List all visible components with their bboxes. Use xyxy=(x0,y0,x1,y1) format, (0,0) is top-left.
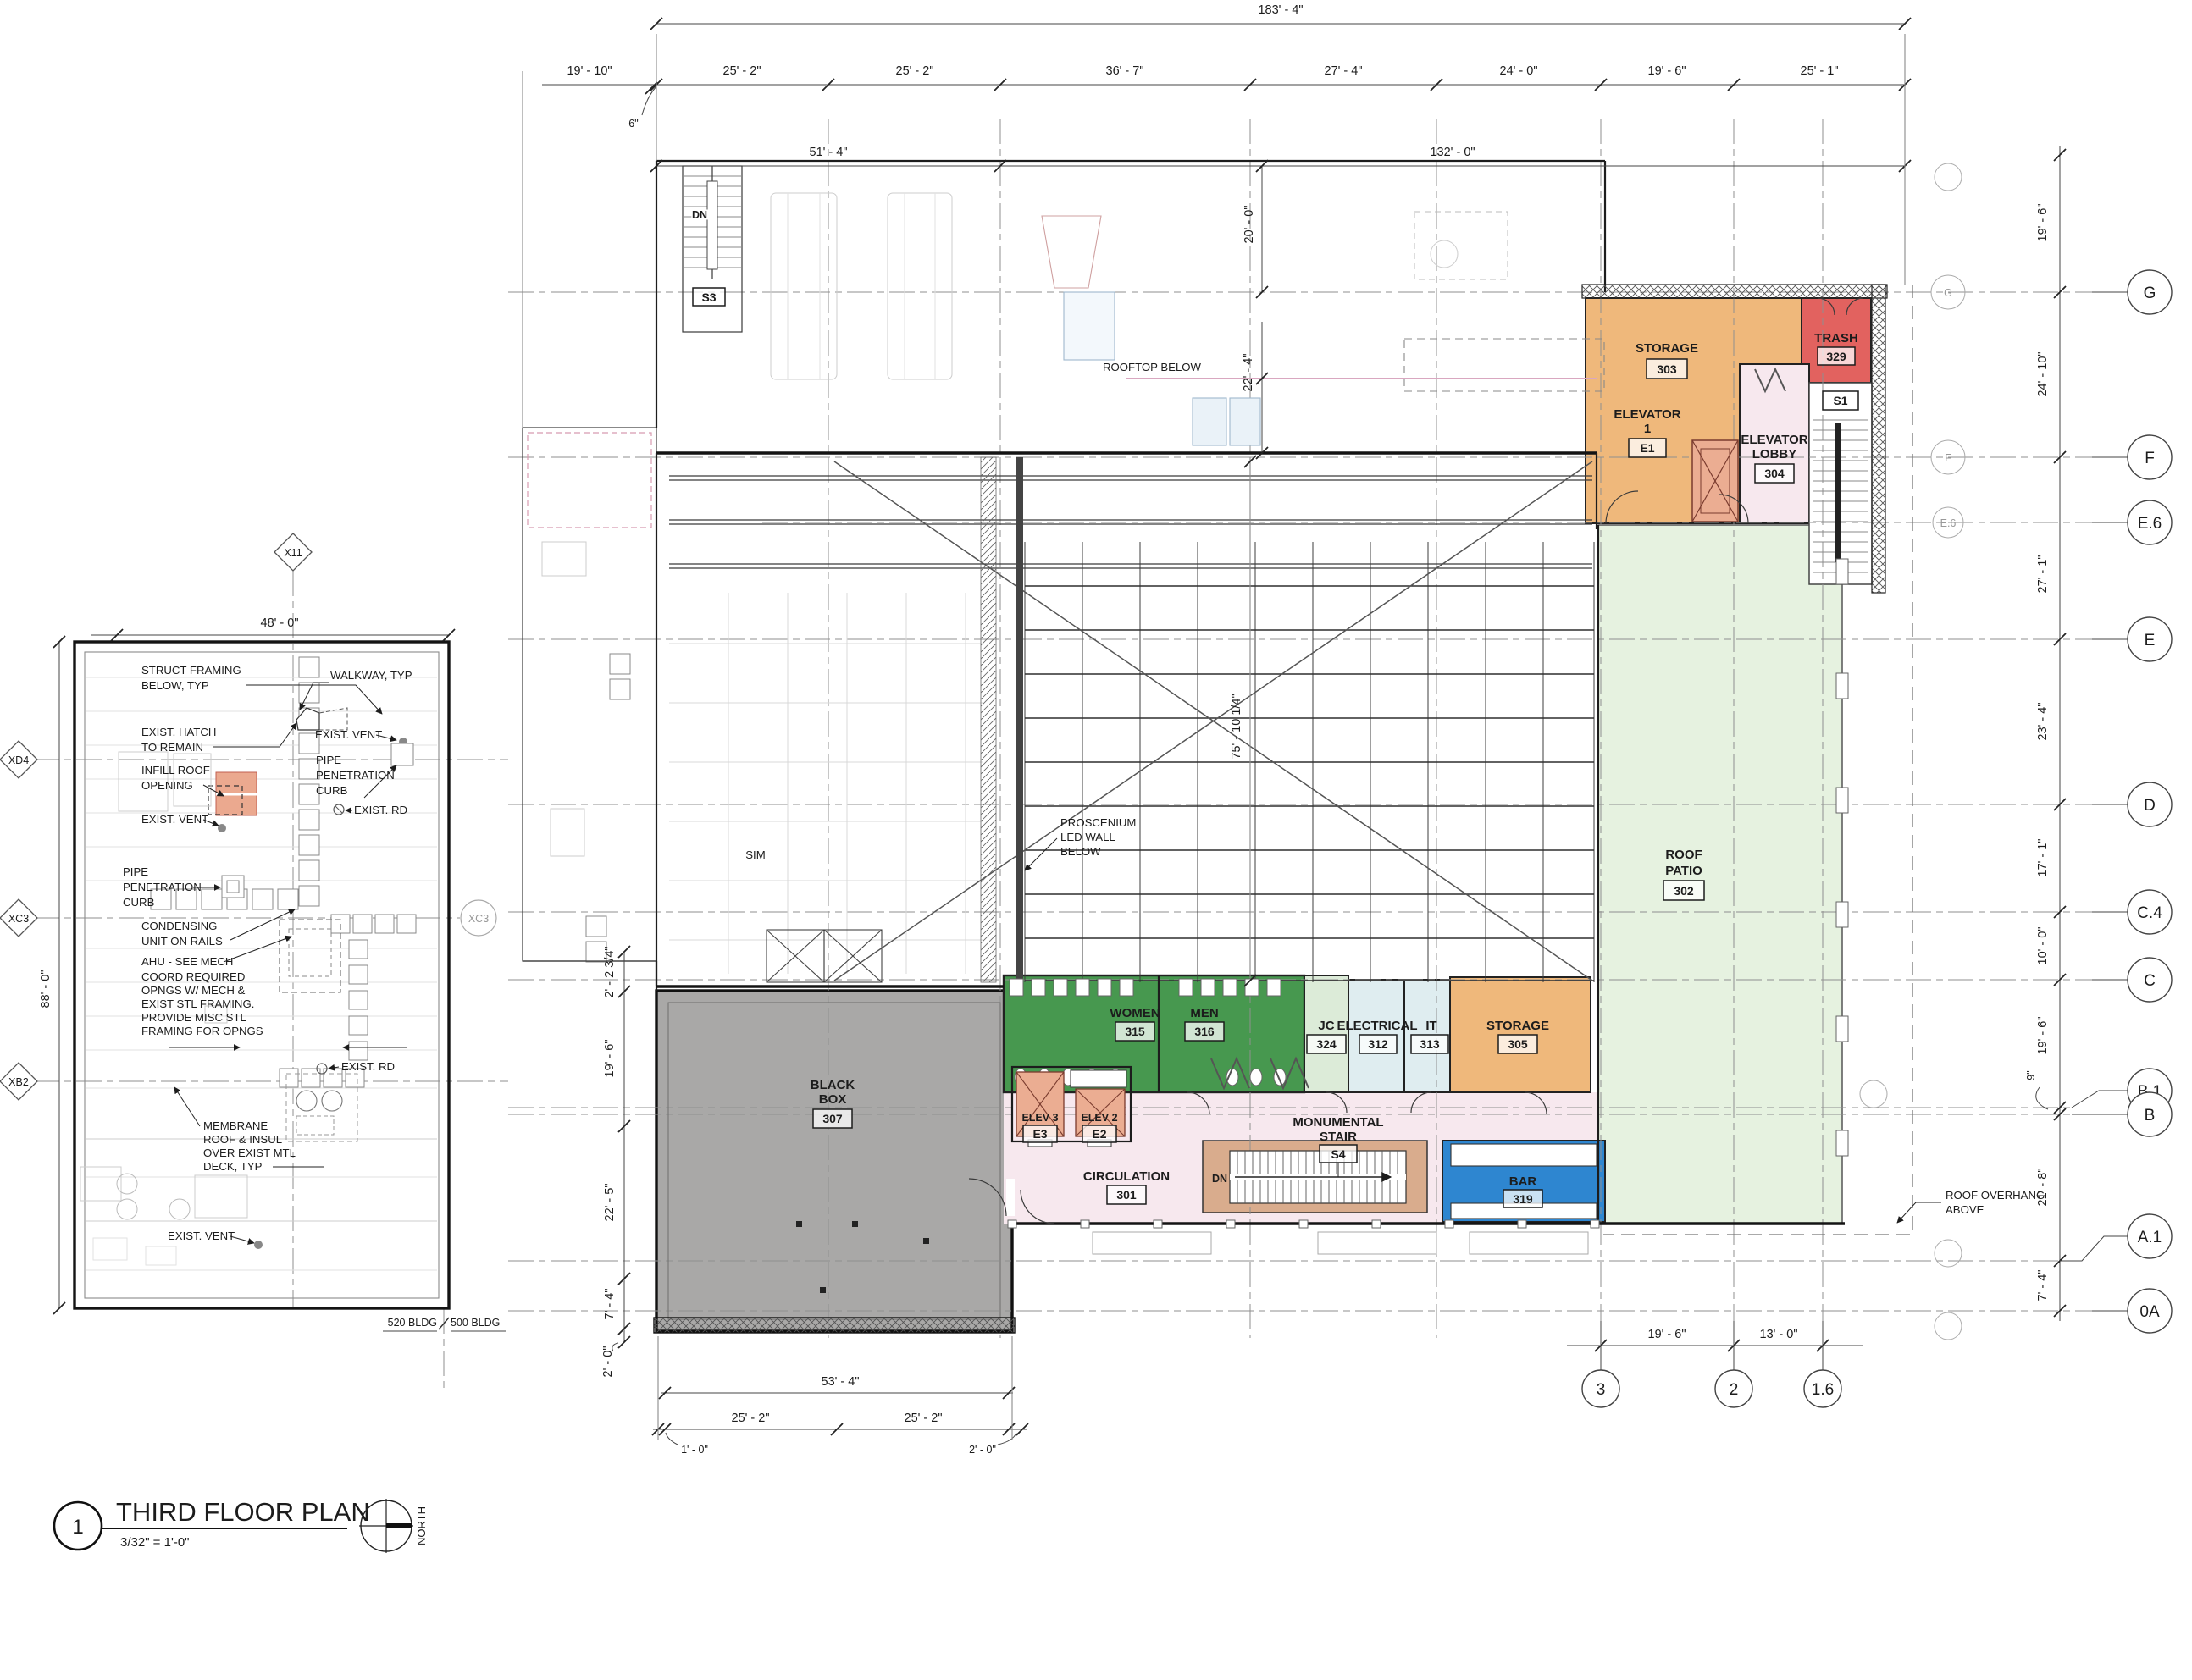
ann-coord-4: PROVIDE MISC STL xyxy=(141,1011,246,1024)
grid-bubble-16: 1.6 xyxy=(1812,1381,1834,1399)
dim-center-0: 20' - 0" xyxy=(1243,206,1256,244)
ann-hatch-1: EXIST. HATCH xyxy=(141,726,216,738)
label-jc: JC xyxy=(1318,1019,1334,1033)
ann-vent-c: EXIST. VENT xyxy=(168,1230,235,1242)
dim-bb-left-0: 2' - 2 3/4" xyxy=(603,946,617,997)
dim-bb-left-2: 22' - 5" xyxy=(603,1184,617,1222)
dim-nine-inch: 9" xyxy=(2025,1070,2037,1080)
label-elev2: ELEV 2 xyxy=(1081,1112,1117,1124)
rooftop-equipment xyxy=(771,193,1604,445)
num-elevator1: E1 xyxy=(1640,441,1654,455)
floor-plan-svg: G F E.6 E D C.4 C B.1 B A.1 0A G F E.6 3… xyxy=(0,0,2192,1680)
dim-bb-bottom-2: 25' - 2" xyxy=(905,1412,943,1425)
ann-infill-1: INFILL ROOF xyxy=(141,764,210,776)
grid-bubble-0a: 0A xyxy=(2139,1303,2160,1321)
num-circulation: 301 xyxy=(1116,1188,1137,1202)
ann-coord-2: OPNGS W/ MECH & xyxy=(141,984,246,997)
ann-struct-1: STRUCT FRAMING xyxy=(141,664,241,677)
ann-rd-b: EXIST. RD xyxy=(341,1060,395,1073)
label-patio-l2: PATIO xyxy=(1665,864,1702,878)
label-elevator1-l1: ELEVATOR xyxy=(1614,407,1680,422)
num-men: 316 xyxy=(1194,1025,1215,1038)
grid-bubble-d: D xyxy=(2144,797,2156,815)
vent-circle-c xyxy=(254,1241,263,1249)
label-storage-303: STORAGE xyxy=(1636,341,1698,356)
ann-cond-2: UNIT ON RAILS xyxy=(141,935,223,948)
grid-bubble-e6: E.6 xyxy=(2138,515,2162,533)
infill-roof-opening xyxy=(208,772,257,815)
elevator1-shaft xyxy=(1692,440,1738,522)
dim-bottomgrid-0: 19' - 6" xyxy=(1648,1328,1686,1341)
title-name: THIRD FLOOR PLAN xyxy=(116,1497,370,1527)
annotations-left-plan: STRUCT FRAMING BELOW, TYP WALKWAY, TYP E… xyxy=(123,664,412,1243)
label-monstair-l2: STAIR xyxy=(1320,1130,1357,1144)
small-bubble-f: F xyxy=(1945,452,1951,464)
monumental-stair-detail xyxy=(1230,1151,1406,1203)
dim-sub-1: 132' - 0" xyxy=(1430,146,1475,159)
label-elevator1-l2: 1 xyxy=(1644,422,1651,436)
dim-bb-left-4: 2' - 0" xyxy=(601,1346,615,1378)
grid-bubble-g: G xyxy=(2144,285,2156,302)
label-bar: BAR xyxy=(1509,1174,1537,1189)
label-trash: TRASH xyxy=(1814,331,1858,345)
ann-curbb-1: PIPE xyxy=(123,865,148,878)
ann-curba-3: CURB xyxy=(316,784,348,797)
bldg-500-label: 500 BLDG xyxy=(451,1317,500,1329)
catwalk-hatch-band xyxy=(981,457,996,982)
ann-cond-1: CONDENSING xyxy=(141,920,217,932)
room-black-box-307 xyxy=(656,991,1012,1331)
label-elevlobby-l2: LOBBY xyxy=(1752,447,1797,461)
dim-top-4: 27' - 4" xyxy=(1325,64,1363,78)
ann-coord-1: COORD REQUIRED xyxy=(141,970,245,983)
dim-bb-left-1: 19' - 6" xyxy=(603,1040,617,1078)
grid-bubble-a1: A.1 xyxy=(2138,1229,2162,1246)
label-sim: SIM xyxy=(745,848,765,861)
room-jc-324 xyxy=(1304,975,1348,1092)
dim-bb-left-3: 7' - 4" xyxy=(603,1289,617,1320)
dim-leftplan-width: 48' - 0" xyxy=(261,616,299,630)
small-bubble-e6: E.6 xyxy=(1940,517,1957,529)
ann-prosc-1: PROSCENIUM xyxy=(1060,816,1136,829)
ann-curbb-3: CURB xyxy=(123,896,155,909)
num-patio: 302 xyxy=(1674,884,1694,898)
label-women: WOMEN xyxy=(1110,1006,1160,1020)
ann-mem-1: MEMBRANE xyxy=(203,1119,268,1132)
dim-bb-bottom-0: 53' - 4" xyxy=(822,1375,860,1389)
dim-right-0: 19' - 6" xyxy=(2036,204,2050,242)
dim-top-3: 36' - 7" xyxy=(1106,64,1144,78)
bldg-520-label: 520 BLDG xyxy=(388,1317,437,1329)
stair-s3 xyxy=(683,166,742,332)
grid-bubble-c4: C.4 xyxy=(2137,904,2162,922)
small-bubble-g: G xyxy=(1944,287,1952,299)
num-women: 315 xyxy=(1125,1025,1145,1038)
dim-center-2: 75' - 10 1/4" xyxy=(1230,694,1243,759)
label-storage-305: STORAGE xyxy=(1486,1019,1549,1033)
num-it: 313 xyxy=(1420,1037,1440,1051)
building-split-marker: 520 BLDG 500 BLDG xyxy=(383,1317,506,1331)
ann-infill-2: OPENING xyxy=(141,779,193,792)
num-storage-305: 305 xyxy=(1508,1037,1528,1051)
dim-top-2: 25' - 2" xyxy=(896,64,934,78)
dim-bb-note-0: 1' - 0" xyxy=(681,1444,708,1456)
label-circulation: CIRCULATION xyxy=(1083,1169,1170,1184)
label-elevlobby-l1: ELEVATOR xyxy=(1741,433,1807,447)
ann-ahu: AHU - SEE MECH xyxy=(141,955,233,968)
num-stair-s3: S3 xyxy=(701,290,716,304)
dim-sub-0: 51' - 4" xyxy=(810,146,848,159)
title-scale: 3/32" = 1'-0" xyxy=(120,1535,189,1550)
dim-center-1: 22' - 4" xyxy=(1242,354,1255,392)
ann-prosc-3: BELOW xyxy=(1060,845,1101,858)
num-trash: 329 xyxy=(1826,350,1846,363)
dim-right-8: 7' - 4" xyxy=(2036,1270,2050,1301)
label-dn-top: DN xyxy=(692,209,707,221)
dim-bb-bottom-1: 25' - 2" xyxy=(732,1412,770,1425)
diamond-xd4: XD4 xyxy=(8,754,29,766)
grid-bubble-c: C xyxy=(2144,972,2156,990)
label-dn-stair: DN xyxy=(1212,1173,1227,1185)
ann-vent-b: EXIST. VENT xyxy=(141,813,208,826)
title-number: 1 xyxy=(72,1516,83,1539)
num-bar: 319 xyxy=(1513,1192,1533,1206)
num-electrical: 312 xyxy=(1368,1037,1388,1051)
label-blackbox-l1: BLACK xyxy=(811,1078,855,1092)
label-men: MEN xyxy=(1190,1006,1218,1020)
dim-six-inch: 6" xyxy=(628,118,638,130)
ann-vent-a: EXIST. VENT xyxy=(315,728,382,741)
grid-bubble-f: F xyxy=(2145,450,2155,467)
stage-grid-zone xyxy=(656,453,1597,986)
label-elev3: ELEV 3 xyxy=(1021,1112,1058,1124)
vent-circle-b xyxy=(218,824,226,832)
proscenium-led-wall xyxy=(1016,457,1023,982)
dim-bb-note-1: 2' - 0" xyxy=(969,1444,996,1456)
circle-xc3: XC3 xyxy=(468,913,489,925)
ann-coord-3: EXIST STL FRAMING. xyxy=(141,997,254,1010)
grid-bubbles-right: G F E.6 E D C.4 C B.1 B A.1 0A xyxy=(2060,270,2172,1333)
num-storage-303: 303 xyxy=(1657,362,1677,376)
dim-right-4: 17' - 1" xyxy=(2036,839,2050,877)
dim-right-5: 10' - 0" xyxy=(2036,927,2050,965)
grid-bubble-2: 2 xyxy=(1730,1381,1739,1399)
dim-top-5: 24' - 0" xyxy=(1500,64,1538,78)
ann-curbb-2: PENETRATION xyxy=(123,881,202,893)
dim-right-6: 19' - 6" xyxy=(2036,1017,2050,1055)
north-arrow: NORTH xyxy=(359,1499,428,1553)
dim-top-1: 25' - 2" xyxy=(723,64,761,78)
ann-hatch-2: TO REMAIN xyxy=(141,741,203,754)
label-it: IT xyxy=(1425,1019,1436,1033)
grid-bubble-e: E xyxy=(2145,632,2156,649)
dim-right-2: 27' - 1" xyxy=(2036,555,2050,594)
diamond-x11: X11 xyxy=(284,547,302,559)
dim-bottomgrid-1: 13' - 0" xyxy=(1760,1328,1798,1341)
diamond-xc3: XC3 xyxy=(8,913,29,925)
ann-mem-4: DECK, TYP xyxy=(203,1160,263,1173)
num-elev2: E2 xyxy=(1092,1127,1106,1141)
ann-struct-2: BELOW, TYP xyxy=(141,679,209,692)
num-stair-s1: S1 xyxy=(1833,394,1847,407)
third-floor-plan-sheet: G F E.6 E D C.4 C B.1 B A.1 0A G F E.6 3… xyxy=(0,0,2192,1680)
ann-mem-2: ROOF & INSUL xyxy=(203,1133,282,1146)
room-roof-patio-302 xyxy=(1598,525,1842,1224)
label-electrical: ELECTRICAL xyxy=(1337,1019,1418,1033)
north-label: NORTH xyxy=(415,1506,428,1545)
grid-bubble-3: 3 xyxy=(1597,1381,1606,1399)
ann-mem-3: OVER EXIST MTL xyxy=(203,1147,296,1159)
label-monstair-l1: MONUMENTAL xyxy=(1293,1115,1383,1130)
num-jc: 324 xyxy=(1316,1037,1337,1051)
dim-overall-top: 183' - 4" xyxy=(1258,3,1303,17)
pipe-curb-square-b xyxy=(222,876,244,898)
ann-overhang-2: ABOVE xyxy=(1946,1203,1984,1216)
diamond-xb2: XB2 xyxy=(8,1076,29,1088)
dim-right-1: 24' - 10" xyxy=(2036,351,2050,396)
grid-bubble-b: B xyxy=(2145,1107,2156,1125)
label-patio-l1: ROOF xyxy=(1665,848,1702,862)
x-braced-boxes xyxy=(767,930,882,982)
num-elevlobby: 304 xyxy=(1764,467,1785,480)
label-blackbox-l2: BOX xyxy=(819,1092,847,1107)
dim-right-3: 23' - 4" xyxy=(2036,703,2050,741)
ann-prosc-2: LED WALL xyxy=(1060,831,1115,843)
roof-framing-lines xyxy=(86,677,437,1270)
ann-overhang-1: ROOF OVERHANG xyxy=(1946,1189,2045,1202)
west-strip xyxy=(523,428,656,961)
dim-leftplan-height: 88' - 0" xyxy=(39,970,53,1009)
ann-rd-a: EXIST. RD xyxy=(354,804,407,816)
left-roof-plan xyxy=(75,642,449,1308)
ann-curba-1: PIPE xyxy=(316,754,341,766)
title-block: 1 THIRD FLOOR PLAN 3/32" = 1'-0" NORTH xyxy=(54,1497,428,1553)
dim-top-0: 19' - 10" xyxy=(567,64,612,78)
num-elev3: E3 xyxy=(1032,1127,1047,1141)
ann-rooftop-below: ROOFTOP BELOW xyxy=(1103,361,1202,373)
grid-bubbles-bottom: 3 2 1.6 xyxy=(1582,1370,1841,1407)
dim-top-7: 25' - 1" xyxy=(1801,64,1839,78)
num-monstair: S4 xyxy=(1331,1147,1345,1161)
pipe-curb-square-a xyxy=(391,743,413,765)
dim-top-6: 19' - 6" xyxy=(1648,64,1686,78)
num-blackbox: 307 xyxy=(822,1112,843,1125)
ann-walkway: WALKWAY, TYP xyxy=(330,669,412,682)
ann-coord-5: FRAMING FOR OPNGS xyxy=(141,1025,263,1037)
